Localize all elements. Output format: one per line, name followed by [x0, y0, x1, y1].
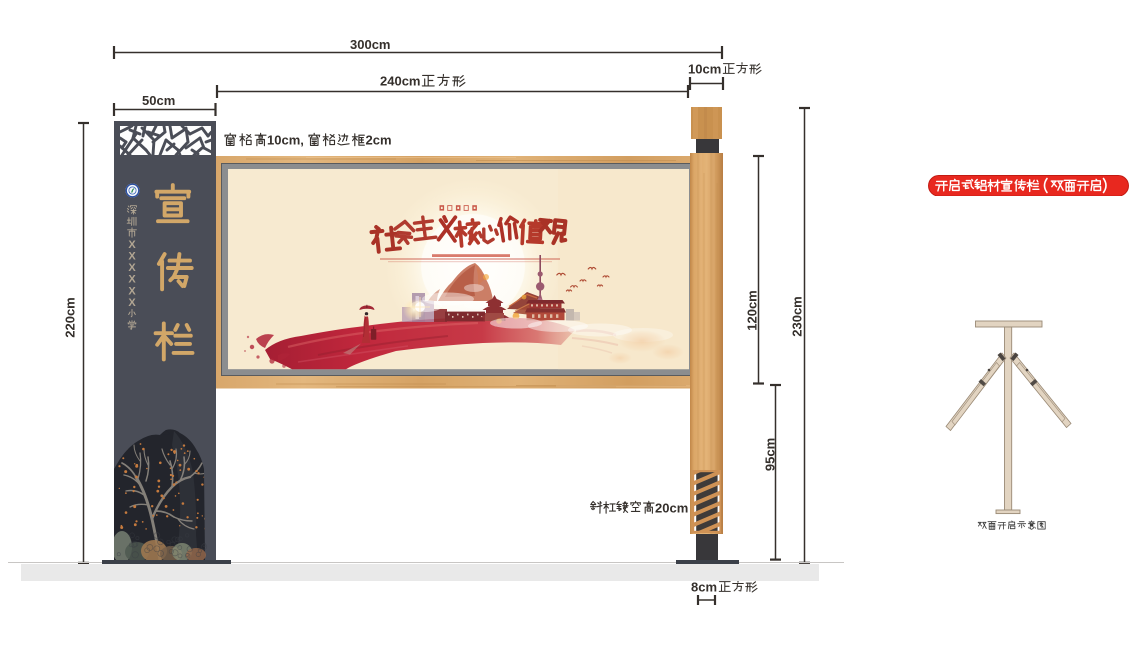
svg-text:X: X — [128, 251, 136, 263]
svg-text:X: X — [128, 285, 136, 297]
svg-text:X: X — [128, 297, 136, 309]
svg-text:X: X — [128, 239, 136, 251]
svg-text:X: X — [128, 262, 136, 274]
svg-text:X: X — [128, 274, 136, 286]
